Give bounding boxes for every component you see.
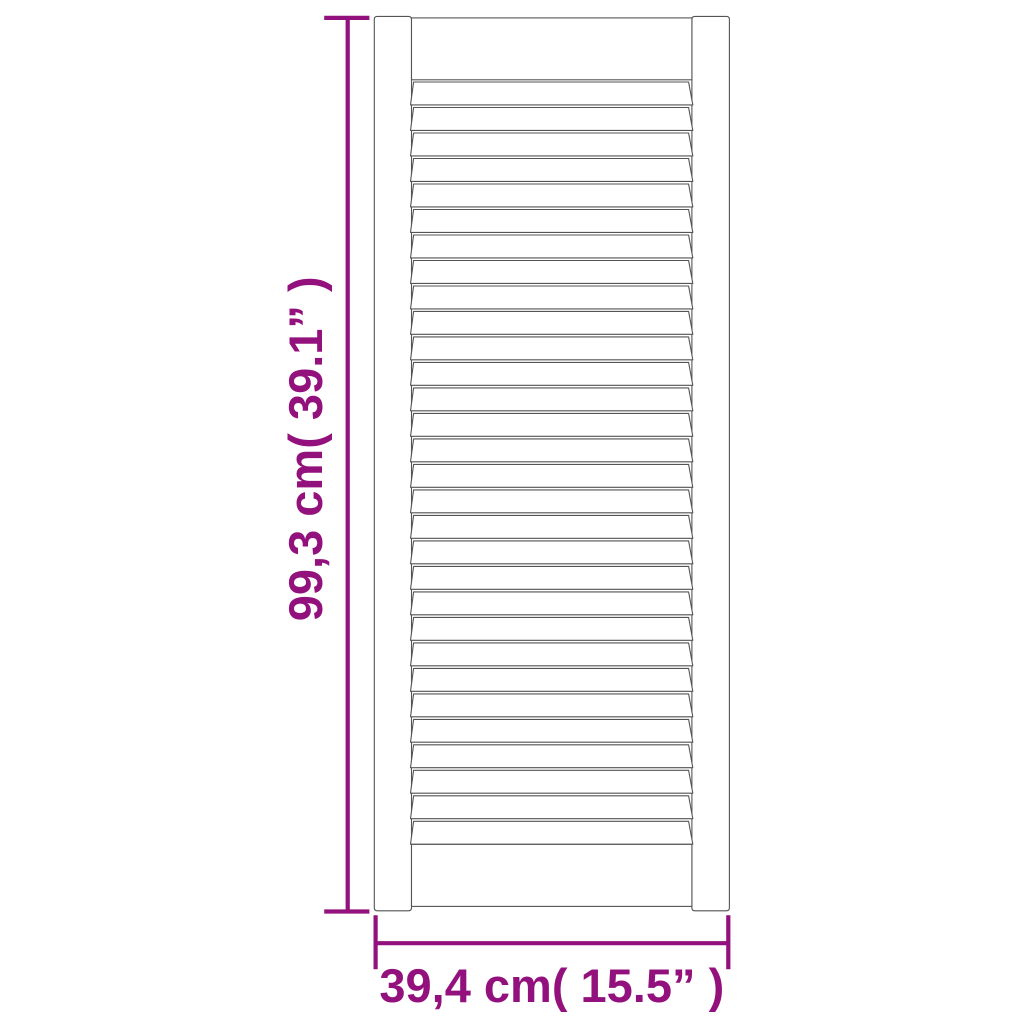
svg-text:99,3 cm( 39.1” ): 99,3 cm( 39.1” ): [279, 276, 332, 621]
svg-text:39,4 cm( 15.5” ): 39,4 cm( 15.5” ): [379, 959, 724, 1012]
